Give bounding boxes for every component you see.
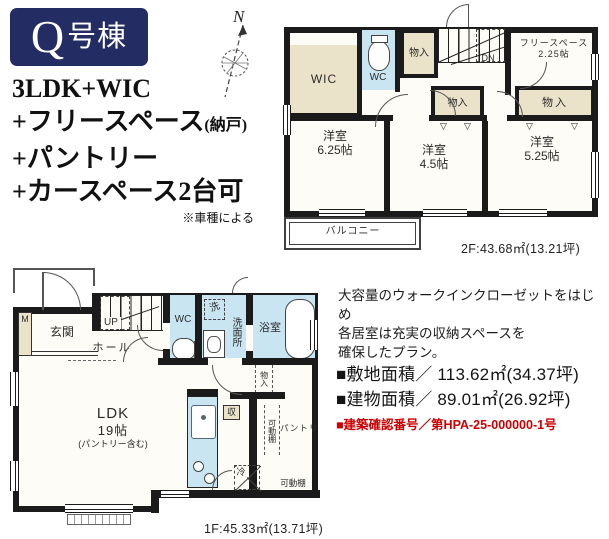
bedroom2-name: 洋室	[399, 143, 469, 157]
window	[499, 209, 547, 217]
wall	[151, 490, 159, 513]
feature-line-3: +パントリー	[12, 142, 302, 175]
wall	[482, 121, 488, 212]
bedroom3-name: 洋室	[506, 135, 578, 149]
ldk-name: LDK	[68, 405, 158, 423]
floor-plan-1f: M 玄関 UP ホール WC 洗 洗面所 浴室 物	[8, 265, 328, 539]
meter-box-label: M	[18, 314, 32, 325]
wc-2f-label: WC	[363, 72, 393, 84]
porch-line	[93, 268, 95, 286]
compass-north-label: N	[233, 7, 255, 27]
feature-line-1: 3LDK+WIC	[12, 72, 302, 105]
description-line-1: 大容量のウォークインクローゼットをはじめ	[338, 286, 606, 324]
area-facts: ■敷地面積／ 113.62㎡(34.37坪) ■建物面積／ 89.01㎡(26.…	[336, 362, 608, 412]
window	[283, 105, 291, 135]
outline-adjust	[158, 498, 320, 514]
entrance-step	[32, 351, 98, 356]
window	[65, 504, 133, 513]
movable-shelf-strip: 可動棚	[264, 405, 280, 455]
window	[10, 372, 19, 406]
movable-shelf-h-label: 可動棚	[271, 478, 315, 488]
flyer-canvas: Q 号棟 3LDK+WIC +フリースペース(納戸) +パントリー +カースペー…	[0, 0, 609, 539]
window	[591, 54, 599, 80]
stairs-dn-label: DN	[475, 53, 501, 64]
site-area-value: 113.62㎡(34.37坪)	[437, 365, 579, 384]
closet-storage-top-label: 物入	[409, 48, 429, 60]
toilet-icon	[172, 338, 196, 360]
entrance-door-leaf	[42, 272, 44, 310]
wall	[384, 121, 390, 212]
floor-plan-2f: 物入 DN フリースペース 2.25帖 物入 物入 ▽ ▽ ▽ ▽	[283, 2, 609, 255]
pantry-label: パントリ	[280, 423, 314, 433]
closet-pole-icon: ▽	[526, 122, 533, 131]
bedroom1-name: 洋室	[300, 129, 370, 143]
stove-burner-icon	[193, 461, 204, 472]
window	[319, 209, 365, 217]
shutter-box	[67, 514, 131, 525]
bedroom2-label: 洋室 4.5帖	[399, 143, 469, 172]
door-leaf	[468, 4, 469, 27]
door-opening	[208, 358, 242, 365]
free-space-label: フリースペース 2.25帖	[513, 38, 595, 60]
wall	[195, 293, 202, 363]
window	[423, 209, 467, 217]
floor2-area-label: 2F:43.68㎡(13.21坪)	[461, 238, 580, 257]
ldk-label: LDK 19帖 (パントリー含む)	[68, 405, 158, 449]
bedroom3-size: 5.25帖	[506, 149, 578, 163]
closet-pole-icon: ▽	[440, 122, 447, 131]
storage-box-label: 収	[223, 407, 240, 418]
car-space-disclaimer: ※車種による	[140, 209, 254, 226]
wall	[505, 28, 511, 95]
building-area-label: ■建物面積／	[336, 390, 432, 409]
door-opening	[246, 325, 253, 351]
kitchen-sink-icon	[191, 405, 216, 439]
building-suffix: 号棟	[67, 23, 127, 52]
wall	[187, 389, 218, 396]
description-line-3: 確保したプラン。	[338, 343, 606, 362]
movable-shelf-v-label: 可動棚	[267, 411, 277, 451]
bedroom1-size: 6.25帖	[300, 143, 370, 157]
feature-line-2-main: +フリースペース	[12, 107, 204, 136]
description-line-2: 各居室は充実の収納スペースを	[338, 324, 606, 343]
washroom-label: 洗面所	[229, 308, 241, 356]
wall	[92, 293, 100, 331]
floor1-area-label: 1F:45.33㎡(13.71坪)	[204, 518, 323, 537]
closet-storage-top: 物入	[400, 29, 438, 78]
hall-ldk-dashed-line	[68, 360, 116, 361]
door-arc	[232, 277, 248, 293]
building-permit-number: ■建築確認番号／第HPA-25-000000-1号	[336, 414, 608, 433]
bedroom2-size: 4.5帖	[399, 157, 469, 171]
building-area-row: ■建物面積／ 89.01㎡(26.92坪)	[336, 387, 608, 412]
feature-line-2: +フリースペース(納戸)	[12, 105, 302, 142]
site-area-row: ■敷地面積／ 113.62㎡(34.37坪)	[336, 362, 608, 387]
window	[591, 152, 599, 198]
wc-1f-label: WC	[171, 314, 195, 326]
site-area-label: ■敷地面積／	[336, 365, 432, 384]
ldk-note: (パントリー含む)	[68, 439, 158, 450]
free-space-size: 2.25帖	[513, 49, 595, 60]
feature-line-2-note: (納戸)	[204, 117, 247, 134]
refrigerator-label: 冷	[235, 467, 247, 478]
balcony-label: バルコニー	[301, 226, 405, 238]
window	[310, 320, 318, 350]
porch-line	[13, 268, 95, 270]
closet-pole-icon: ▽	[464, 122, 471, 131]
feature-list: 3LDK+WIC +フリースペース(納戸) +パントリー +カースペース2台可	[12, 72, 302, 208]
vanity-icon	[203, 330, 225, 358]
window	[161, 490, 189, 498]
bathroom-label: 浴室	[254, 322, 286, 335]
bedroom1-label: 洋室 6.25帖	[300, 129, 370, 158]
entrance-door-arc	[43, 272, 81, 310]
stairs-up-label: UP	[101, 317, 121, 329]
closet-strip-label: 物入	[259, 367, 269, 391]
building-letter: Q	[31, 14, 64, 60]
toilet-icon	[368, 41, 390, 71]
wic-label: WIC	[293, 72, 355, 86]
description-text: 大容量のウォークインクローゼットをはじめ 各居室は充実の収納スペースを 確保した…	[338, 286, 606, 362]
door-opening	[163, 323, 170, 349]
closet-storage-right-label: 物入	[542, 97, 568, 110]
window	[10, 461, 19, 491]
entrance-label: 玄関	[41, 325, 83, 339]
building-area-value: 89.01㎡(26.92坪)	[437, 390, 570, 409]
free-space-name: フリースペース	[513, 38, 595, 49]
ldk-size: 19帖	[68, 423, 158, 439]
building-badge: Q 号棟	[10, 8, 148, 66]
closet-strip: 物入	[255, 365, 273, 393]
feature-line-4: +カースペース2台可	[12, 175, 302, 208]
door-arc	[446, 4, 469, 27]
bedroom3-label: 洋室 5.25帖	[506, 135, 578, 164]
closet-pole-icon: ▽	[571, 122, 578, 131]
